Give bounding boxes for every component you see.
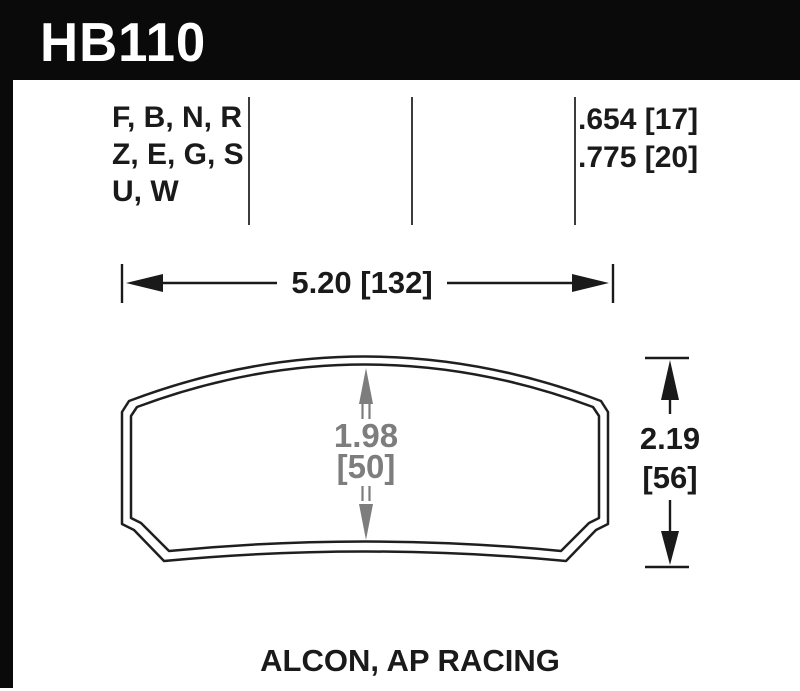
compound-codes-line-2: Z, E, G, S (112, 136, 244, 173)
compound-codes-line-1: F, B, N, R (112, 99, 244, 136)
center-dim-up-arrow-icon (359, 368, 373, 404)
center-dimension-value-mm: [50] (316, 451, 416, 482)
height-dim-down-arrow-icon (661, 531, 679, 565)
left-border-bar (0, 0, 13, 688)
width-dim-right-arrow-icon (572, 274, 609, 292)
height-dimension-value-mm: [56] (625, 458, 715, 497)
height-dimension-label: 2.19 [56] (625, 419, 715, 497)
thickness-value-1: .654 [17] (578, 101, 698, 139)
header-bar: HB110 (0, 0, 800, 80)
width-dim-left-arrow-icon (126, 274, 163, 292)
application-label: ALCON, AP RACING (110, 643, 710, 679)
width-dimension-label: 5.20 [132] (277, 265, 447, 301)
compound-codes-line-3: U, W (112, 173, 244, 210)
compound-codes: F, B, N, R Z, E, G, S U, W (112, 99, 244, 210)
column-separator-3 (574, 97, 576, 225)
column-separator-1 (248, 97, 250, 225)
center-dimension-label: 1.98 [50] (316, 420, 416, 482)
part-number: HB110 (40, 10, 206, 74)
height-dimension-value-in: 2.19 (625, 419, 715, 458)
center-dim-down-arrow-icon (359, 504, 373, 540)
center-dimension-value-in: 1.98 (316, 420, 416, 451)
thickness-value-2: .775 [20] (578, 139, 698, 177)
column-separator-2 (411, 97, 413, 225)
brake-pad-spec-diagram: HB110 F, B, N, R Z, E, G, S U, W .654 [1… (0, 0, 800, 691)
pad-thickness-values: .654 [17] .775 [20] (578, 101, 698, 177)
height-dim-up-arrow-icon (661, 360, 679, 400)
